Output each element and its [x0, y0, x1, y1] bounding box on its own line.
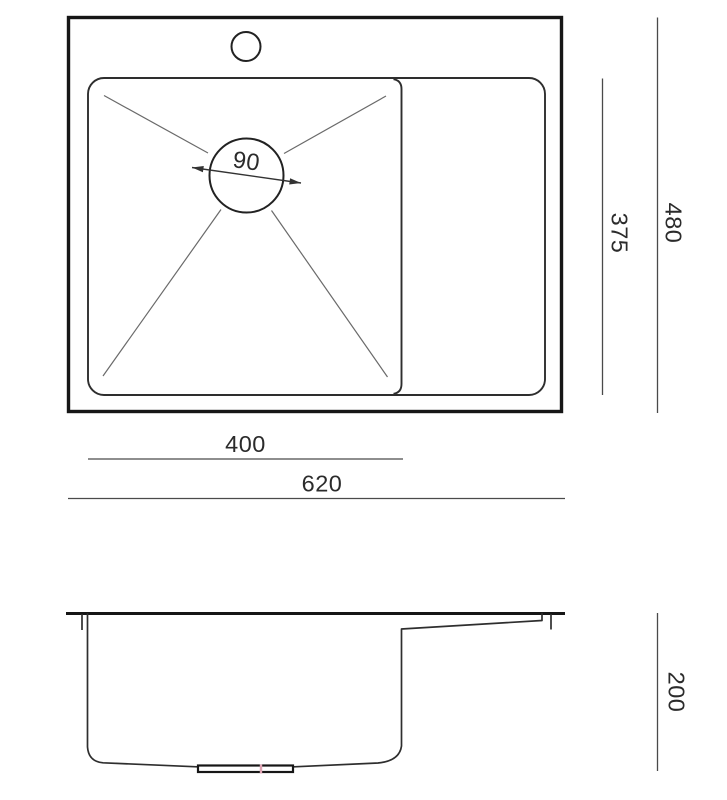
overall-depth-label: 480 — [661, 203, 687, 244]
sink-technical-drawing-page: 90 400 620 375 480 — [0, 0, 727, 800]
bowl-depth-dimension: 375 — [603, 79, 633, 396]
bowl-section-profile — [88, 614, 543, 767]
top-view: 90 400 620 375 480 — [68, 18, 687, 499]
faucet-hole — [232, 32, 261, 61]
overall-depth-dimension: 480 — [658, 18, 687, 414]
drain-fitting — [198, 765, 293, 774]
bowl-depth-label: 375 — [607, 213, 633, 254]
bowl-width-dimension: 400 — [88, 431, 403, 459]
drain-diameter-label: 90 — [231, 146, 261, 176]
side-view: 200 — [66, 613, 690, 774]
bowl-width-label: 400 — [225, 431, 266, 457]
overall-height-label: 200 — [664, 672, 690, 713]
overall-height-dimension: 200 — [658, 613, 690, 771]
overall-width-dimension: 620 — [68, 471, 565, 499]
sink-outer-edge — [69, 18, 562, 412]
overall-width-label: 620 — [302, 471, 343, 497]
drain-fitting-body — [198, 766, 293, 773]
sink-technical-drawing: 90 400 620 375 480 — [0, 0, 727, 800]
